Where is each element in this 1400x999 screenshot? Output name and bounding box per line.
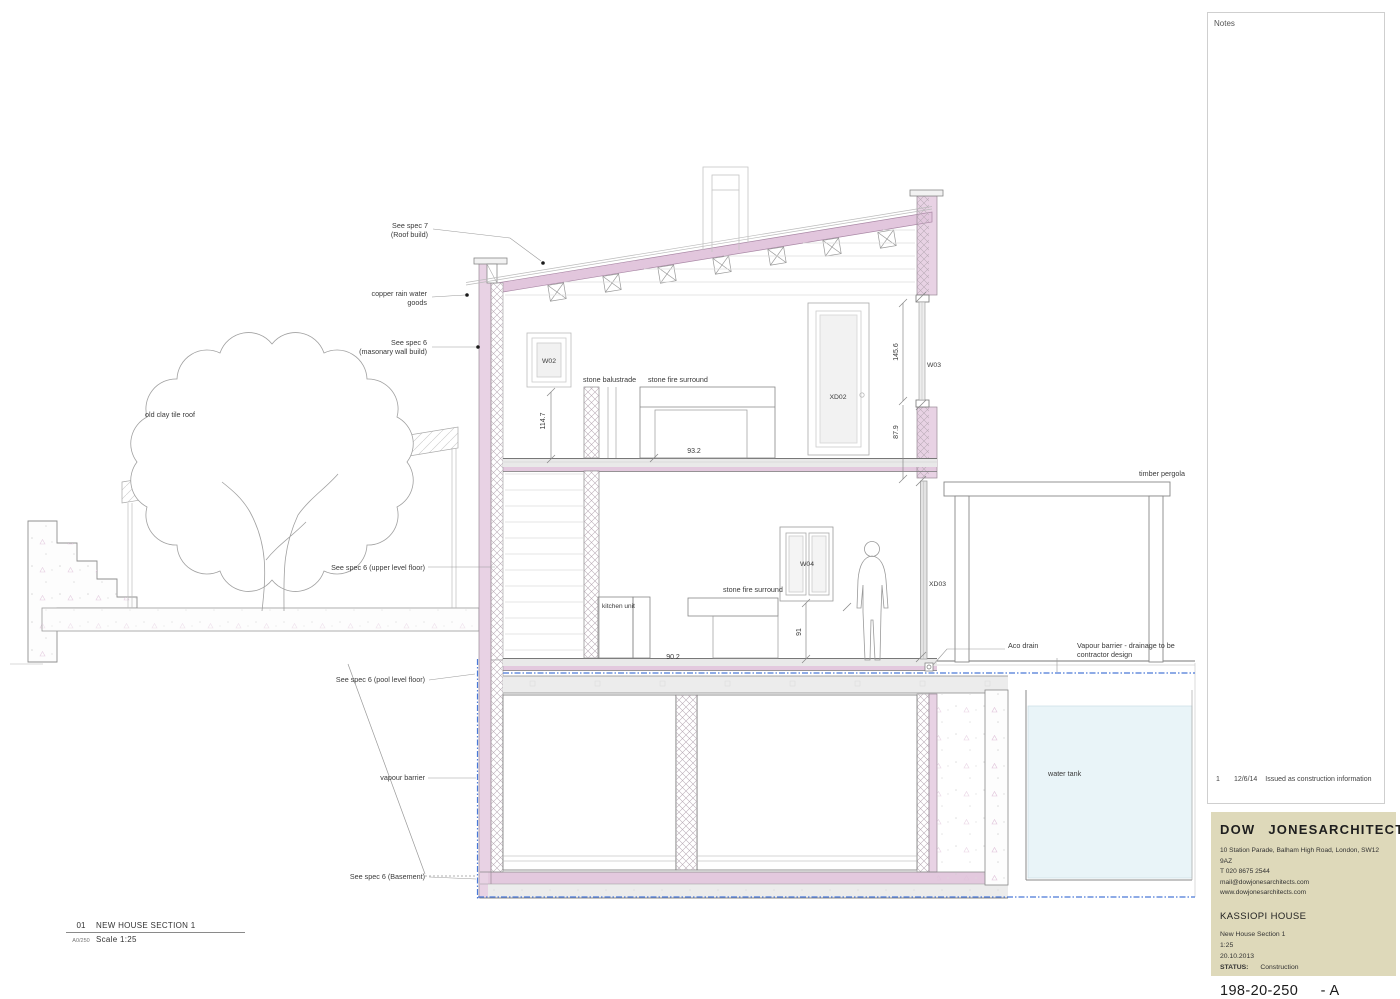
opening-ticks [650, 292, 926, 662]
label-vapour-drain-1: Vapour barrier - drainage to be [1077, 641, 1175, 650]
drawing-scale: 1:25 [1220, 940, 1387, 951]
basement-room-right [697, 695, 917, 870]
dim-114-7: 114.7 [540, 412, 547, 429]
title-divider [66, 932, 245, 933]
notes-panel: Notes 1 12/6/14 Issued as construction i… [1207, 12, 1385, 804]
stair-treads [505, 474, 583, 650]
label-fire-upper: stone fire surround [648, 375, 708, 384]
door-xd03 [921, 481, 928, 659]
label-pool-floor: See spec 6 (pool level floor) [336, 675, 425, 684]
roof-build-band [497, 212, 932, 293]
status-label: STATUS: [1220, 964, 1248, 971]
excavation-line [348, 664, 477, 876]
timber-pergola [944, 482, 1170, 662]
fire-surround-upper [640, 387, 775, 458]
dim-87-9: 87.9 [893, 425, 900, 439]
firm-name: DOW JONES ARCHITECTS [1220, 822, 1387, 837]
status-value: Construction [1260, 964, 1298, 971]
drawing-date: 20.10.2013 [1220, 951, 1387, 962]
label-roof-spec-2: (Roof build) [391, 230, 428, 239]
label-wall-spec-2: (masonary wall build) [359, 347, 427, 356]
tag-w03: W03 [927, 362, 941, 369]
firm-word-architects: ARCHITECTS [1318, 822, 1400, 837]
view-number: 01 [66, 921, 96, 930]
drawing-number: 198-20-250 - A [1220, 983, 1387, 999]
label-fire-lower: stone fire surround [723, 585, 783, 594]
aco-drain-detail [925, 663, 933, 671]
basement-room-left [503, 695, 676, 870]
label-copper-1: copper rain water [371, 289, 427, 298]
label-pergola: timber pergola [1139, 469, 1185, 478]
dim-145-6: 145.6 [893, 343, 900, 361]
tag-xd03: XD03 [929, 581, 946, 588]
firm-word-dow: DOW [1220, 822, 1255, 837]
sheet-reference: A0/250 [66, 938, 96, 944]
firm-address: 10 Station Parade, Balham High Road, Lon… [1220, 846, 1387, 867]
drawing-title-text: New House Section 1 [1220, 929, 1387, 940]
firm-phone: T 020 8675 2544 [1220, 867, 1387, 878]
label-roof-spec-1: See spec 7 [392, 221, 428, 230]
revision-text: Issued as construction information [1265, 776, 1371, 783]
project-name: KASSIOPI HOUSE [1220, 911, 1387, 922]
revision-number: 1 [1216, 776, 1232, 783]
tag-xd02: XD02 [829, 394, 846, 401]
water-tank [1026, 663, 1195, 897]
door-xd02 [808, 303, 869, 455]
firm-contact: 10 Station Parade, Balham High Road, Lon… [1220, 846, 1387, 899]
label-balustrade: stone balustrade [583, 375, 636, 384]
view-title: NEW HOUSE SECTION 1 [96, 921, 196, 930]
drawing-sheet: { "colors": { "wall_pink": "#e8d2e4", "r… [0, 0, 1400, 988]
chimney [703, 167, 748, 252]
drawing-status: STATUS: Construction [1220, 962, 1387, 973]
notes-heading: Notes [1214, 19, 1235, 28]
label-kitchen: kitchen unit [602, 603, 635, 610]
label-basement: See spec 6 (Basement) [350, 872, 425, 881]
view-scale: Scale 1:25 [96, 935, 137, 944]
revision-date: 12/6/14 [1234, 776, 1257, 783]
person-figure [857, 542, 888, 661]
label-aco-drain: Aco drain [1008, 641, 1038, 650]
stone-balustrade [584, 387, 616, 458]
revision-row: 1 12/6/14 Issued as construction informa… [1216, 776, 1372, 783]
firm-website: www.dowjonesarchitects.com [1220, 888, 1387, 899]
label-wall-spec-1: See spec 6 [391, 338, 427, 347]
tag-w02: W02 [542, 358, 556, 365]
ceiling-lines [505, 230, 915, 295]
dim-93-2: 93.2 [687, 448, 701, 455]
title-block: DOW JONES ARCHITECTS 10 Station Parade, … [1211, 812, 1396, 976]
label-vapour: vapour barrier [380, 773, 425, 782]
tag-w04: W04 [800, 561, 814, 568]
label-upper-floor: See spec 6 (upper level floor) [331, 563, 425, 572]
drawing-revision: - A [1321, 983, 1340, 999]
fire-surround-lower [688, 598, 778, 658]
tree-canopy [131, 333, 414, 592]
firm-email: mail@dowjonesarchitects.com [1220, 878, 1387, 889]
chimney-breast [584, 471, 599, 658]
section-drawing: See spec 7 (Roof build) copper rain wate… [0, 0, 1400, 988]
drawing-info: New House Section 1 1:25 20.10.2013 STAT… [1220, 929, 1387, 974]
label-old-roof: old clay tile roof [145, 410, 195, 419]
label-water-tank: water tank [1047, 769, 1082, 778]
dim-91: 91 [796, 628, 803, 636]
tag-texts: W02 XD02 W03 W04 XD03 [542, 358, 946, 588]
drawing-title-bar: 01 NEW HOUSE SECTION 1 A0/250 Scale 1:25 [66, 921, 246, 944]
firm-word-jones: JONES [1268, 822, 1318, 837]
label-copper-2: goods [407, 298, 427, 307]
dim-90-2: 90.2 [666, 654, 680, 661]
earth-zone [937, 694, 985, 884]
drawing-number-value: 198-20-250 [1220, 983, 1298, 999]
label-vapour-drain-2: contractor design [1077, 650, 1132, 659]
window-w03 [916, 295, 929, 407]
copper-roof-lines [466, 207, 932, 286]
